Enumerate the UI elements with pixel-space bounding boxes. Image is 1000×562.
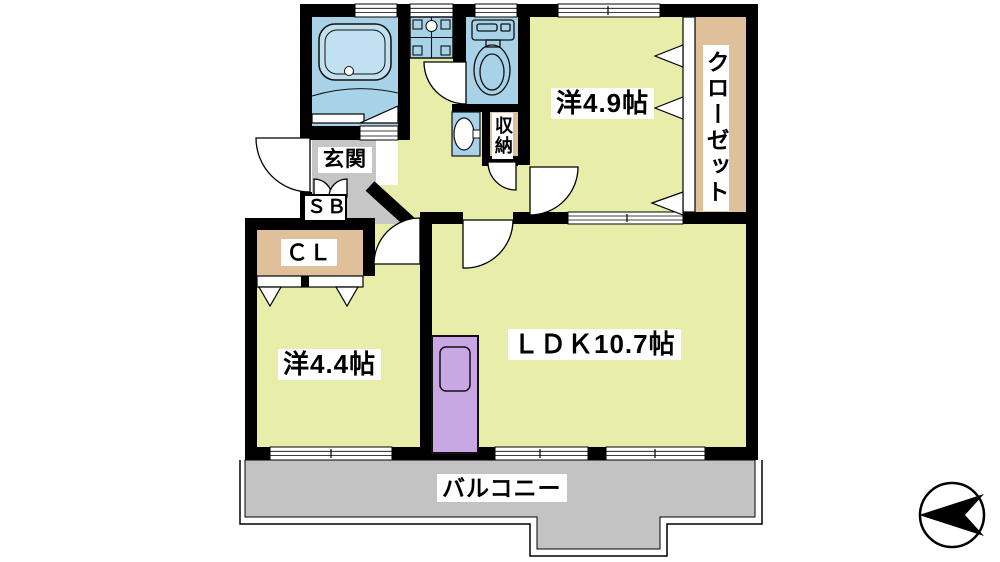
window-top-western-49 (558, 4, 660, 17)
closet-door-track (683, 17, 695, 212)
western-room-44-label: 洋4.4帖 (278, 349, 381, 380)
floor-plan: 洋4.9帖 クローゼット 収納 玄関 ＳＢ ＣＬ 洋4.4帖 ＬＤＫ10.7帖 … (0, 0, 1000, 562)
cl-door-track (257, 276, 363, 287)
window-top-bathroom (355, 4, 397, 17)
sliding-partition-western49-ldk (568, 212, 683, 224)
bathroom-door-track (312, 114, 364, 123)
window-bottom-ldk-2 (606, 447, 705, 460)
entrance-label: 玄関 (318, 147, 372, 173)
storage-label: 収納 (492, 113, 513, 159)
cl-closet-label: ＣＬ (281, 239, 337, 266)
washbasin-icon (452, 112, 480, 156)
window-top-toilet (475, 4, 517, 17)
ldk-label: ＬＤＫ10.7帖 (508, 329, 681, 360)
cl-track-tick (301, 276, 309, 287)
washing-machine-pan-icon (410, 17, 453, 58)
shoebox-label: ＳＢ (303, 194, 347, 222)
western-room-49-label: 洋4.9帖 (551, 88, 654, 119)
entrance-door-swing (256, 138, 310, 192)
window-bottom-western-44 (270, 447, 392, 460)
kitchen-counter-icon (432, 336, 478, 453)
balcony-label: バルコニー (437, 474, 567, 502)
window-top-laundry (410, 4, 453, 17)
closet-label: クローゼット (703, 45, 729, 211)
window-bottom-ldk-1 (495, 447, 588, 460)
north-arrow-icon (919, 483, 984, 547)
bathroom-door-opening (360, 126, 398, 140)
